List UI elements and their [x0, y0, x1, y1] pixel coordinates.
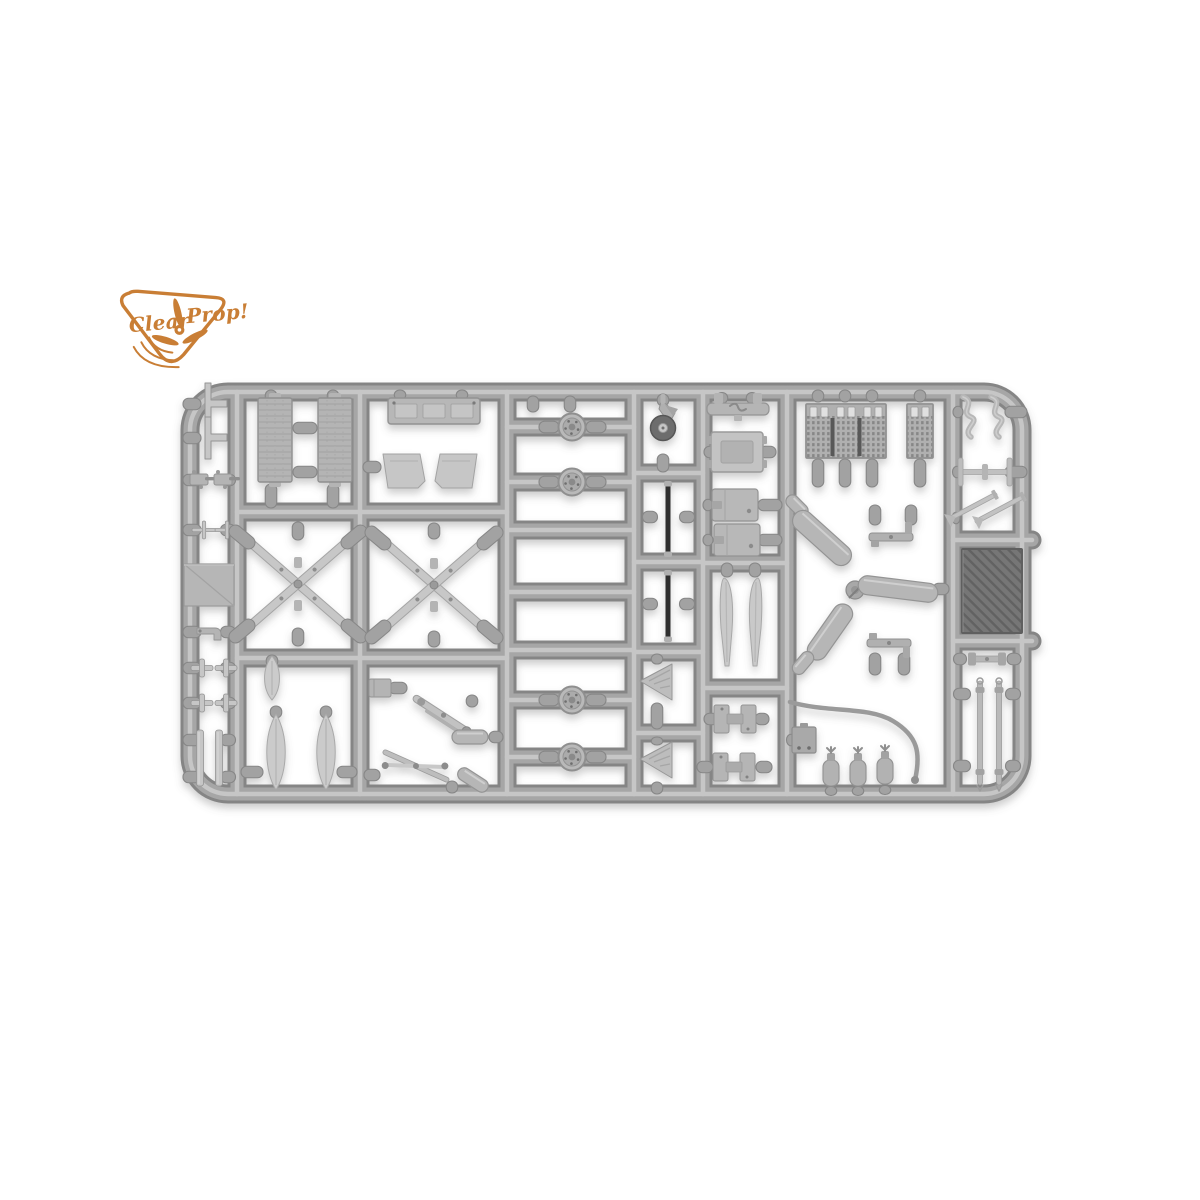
sprue-gate [564, 396, 576, 412]
sprue-gate [657, 454, 669, 472]
part-radiator [258, 393, 292, 487]
part-grille3 [806, 404, 886, 458]
sprue-gate [914, 390, 926, 402]
part-box [712, 489, 758, 521]
part-trap [435, 454, 477, 488]
sprue-gate [879, 786, 891, 795]
part-framebox [707, 432, 767, 472]
sprue-gate [364, 769, 380, 781]
part-xstrut [362, 523, 505, 646]
sprue-gate [866, 459, 878, 487]
sprue-gate [183, 432, 201, 444]
part-longbox [388, 398, 480, 424]
sprue-gate [812, 459, 824, 487]
sprue-gate [643, 598, 658, 610]
part-cone [640, 742, 672, 778]
sprue-gate [954, 760, 971, 772]
sprue-gate [539, 476, 559, 488]
sprue-gate [839, 390, 851, 402]
part-xstrut [226, 522, 369, 645]
sprue-gate [756, 761, 772, 773]
product-photo: Clear Prop! [0, 0, 1200, 1200]
sprue-gate [680, 598, 695, 610]
part-cyl [788, 506, 856, 570]
sprue-gate [852, 787, 864, 796]
sprue-gate [869, 505, 881, 525]
sprue-gate [466, 695, 478, 707]
part-wheel [559, 687, 586, 714]
sprue-gate [539, 421, 559, 433]
part-bottle [877, 745, 893, 784]
part-box [714, 524, 760, 556]
part-dumbbell [968, 653, 1006, 666]
sprue-gate [337, 766, 357, 778]
part-darkrod [664, 570, 672, 642]
sprue-gate [293, 422, 317, 434]
part-grille1 [907, 404, 933, 458]
sprue-gate [539, 751, 559, 763]
sprue-gate [749, 563, 761, 577]
sprue-gate [1006, 688, 1021, 700]
sprue-gate [241, 766, 263, 778]
sprue-gate [293, 466, 317, 478]
sprue-gate [954, 688, 971, 700]
part-cyl [857, 575, 939, 604]
sprue-gate [1005, 406, 1027, 418]
sprue-gate [1006, 760, 1021, 772]
part-radiator [318, 393, 352, 487]
part-blade [317, 714, 335, 790]
part-cyl [452, 730, 488, 744]
sprue-gate [327, 484, 339, 508]
part-hpart [713, 753, 755, 781]
part-darkpanel [962, 549, 1022, 633]
sprue-gate [292, 522, 304, 540]
part-panel [184, 564, 234, 606]
sprue-gate [265, 484, 277, 508]
sprue-gate [1007, 653, 1021, 665]
sprue-gate [651, 737, 663, 745]
part-scissor [379, 747, 454, 785]
sprue-gate [489, 731, 503, 743]
sprue-gate [651, 654, 663, 664]
sprue-gate [825, 787, 837, 796]
sprue [183, 383, 1032, 796]
part-longrod [976, 678, 985, 791]
part-boxs [369, 679, 391, 697]
sprue-gate [389, 682, 407, 694]
sprue-gate [428, 631, 440, 647]
sprue-photo-canvas: Clear Prop! [0, 0, 1200, 1200]
part-wheel [559, 744, 586, 771]
sprue-gate [651, 782, 663, 794]
logo-text-prop: Prop! [184, 299, 250, 328]
part-hpart [714, 705, 756, 733]
sprue-gate [586, 476, 606, 488]
sprue-gate [839, 459, 851, 487]
sprue-gate [680, 511, 695, 523]
part-trap [383, 454, 425, 488]
clearprop-logo: Clear Prop! [121, 282, 253, 372]
sprue-gate [643, 511, 658, 523]
part-plate [792, 723, 816, 753]
sprue-gate [586, 694, 606, 706]
sprue-gate [953, 406, 963, 418]
sprue-gate [758, 499, 782, 511]
part-hook [197, 628, 221, 640]
part-ibar [958, 458, 1012, 486]
sprue-gate [954, 653, 967, 665]
sprue-gate [527, 396, 539, 412]
part-bottle [850, 747, 866, 786]
sprue-gate [183, 398, 201, 410]
sprue-gate [914, 459, 926, 487]
sprue-gate [586, 751, 606, 763]
sprue-gate [866, 390, 878, 402]
sprue-gate [721, 563, 733, 577]
sprue-gate [292, 628, 304, 646]
part-wheel [559, 414, 586, 441]
sprue-gate [651, 703, 663, 729]
sprue-gate [539, 694, 559, 706]
sprue-gate [428, 523, 440, 539]
part-fin [749, 578, 761, 666]
part-strip [216, 730, 223, 786]
sprue-gate [758, 534, 782, 546]
part-longrod [995, 678, 1004, 791]
part-blade [267, 714, 285, 790]
part-wheel [559, 469, 586, 496]
sprue-gate [697, 761, 713, 773]
sprue-gate [586, 421, 606, 433]
part-fin [720, 578, 732, 666]
part-bottle [823, 747, 839, 786]
part-scurve [963, 397, 974, 437]
sprue-gate [446, 781, 458, 793]
sprue-gate [363, 461, 381, 473]
part-cone [640, 664, 672, 700]
sprue-gate [703, 534, 713, 546]
part-tpart [205, 417, 227, 459]
part-tbracket [869, 522, 913, 547]
part-strip [197, 730, 204, 786]
part-darkrod [664, 481, 672, 557]
sprue-gate [755, 713, 769, 725]
sprue-gate [905, 505, 917, 525]
sprue-gate [869, 653, 881, 675]
sprue-gate [812, 390, 824, 402]
